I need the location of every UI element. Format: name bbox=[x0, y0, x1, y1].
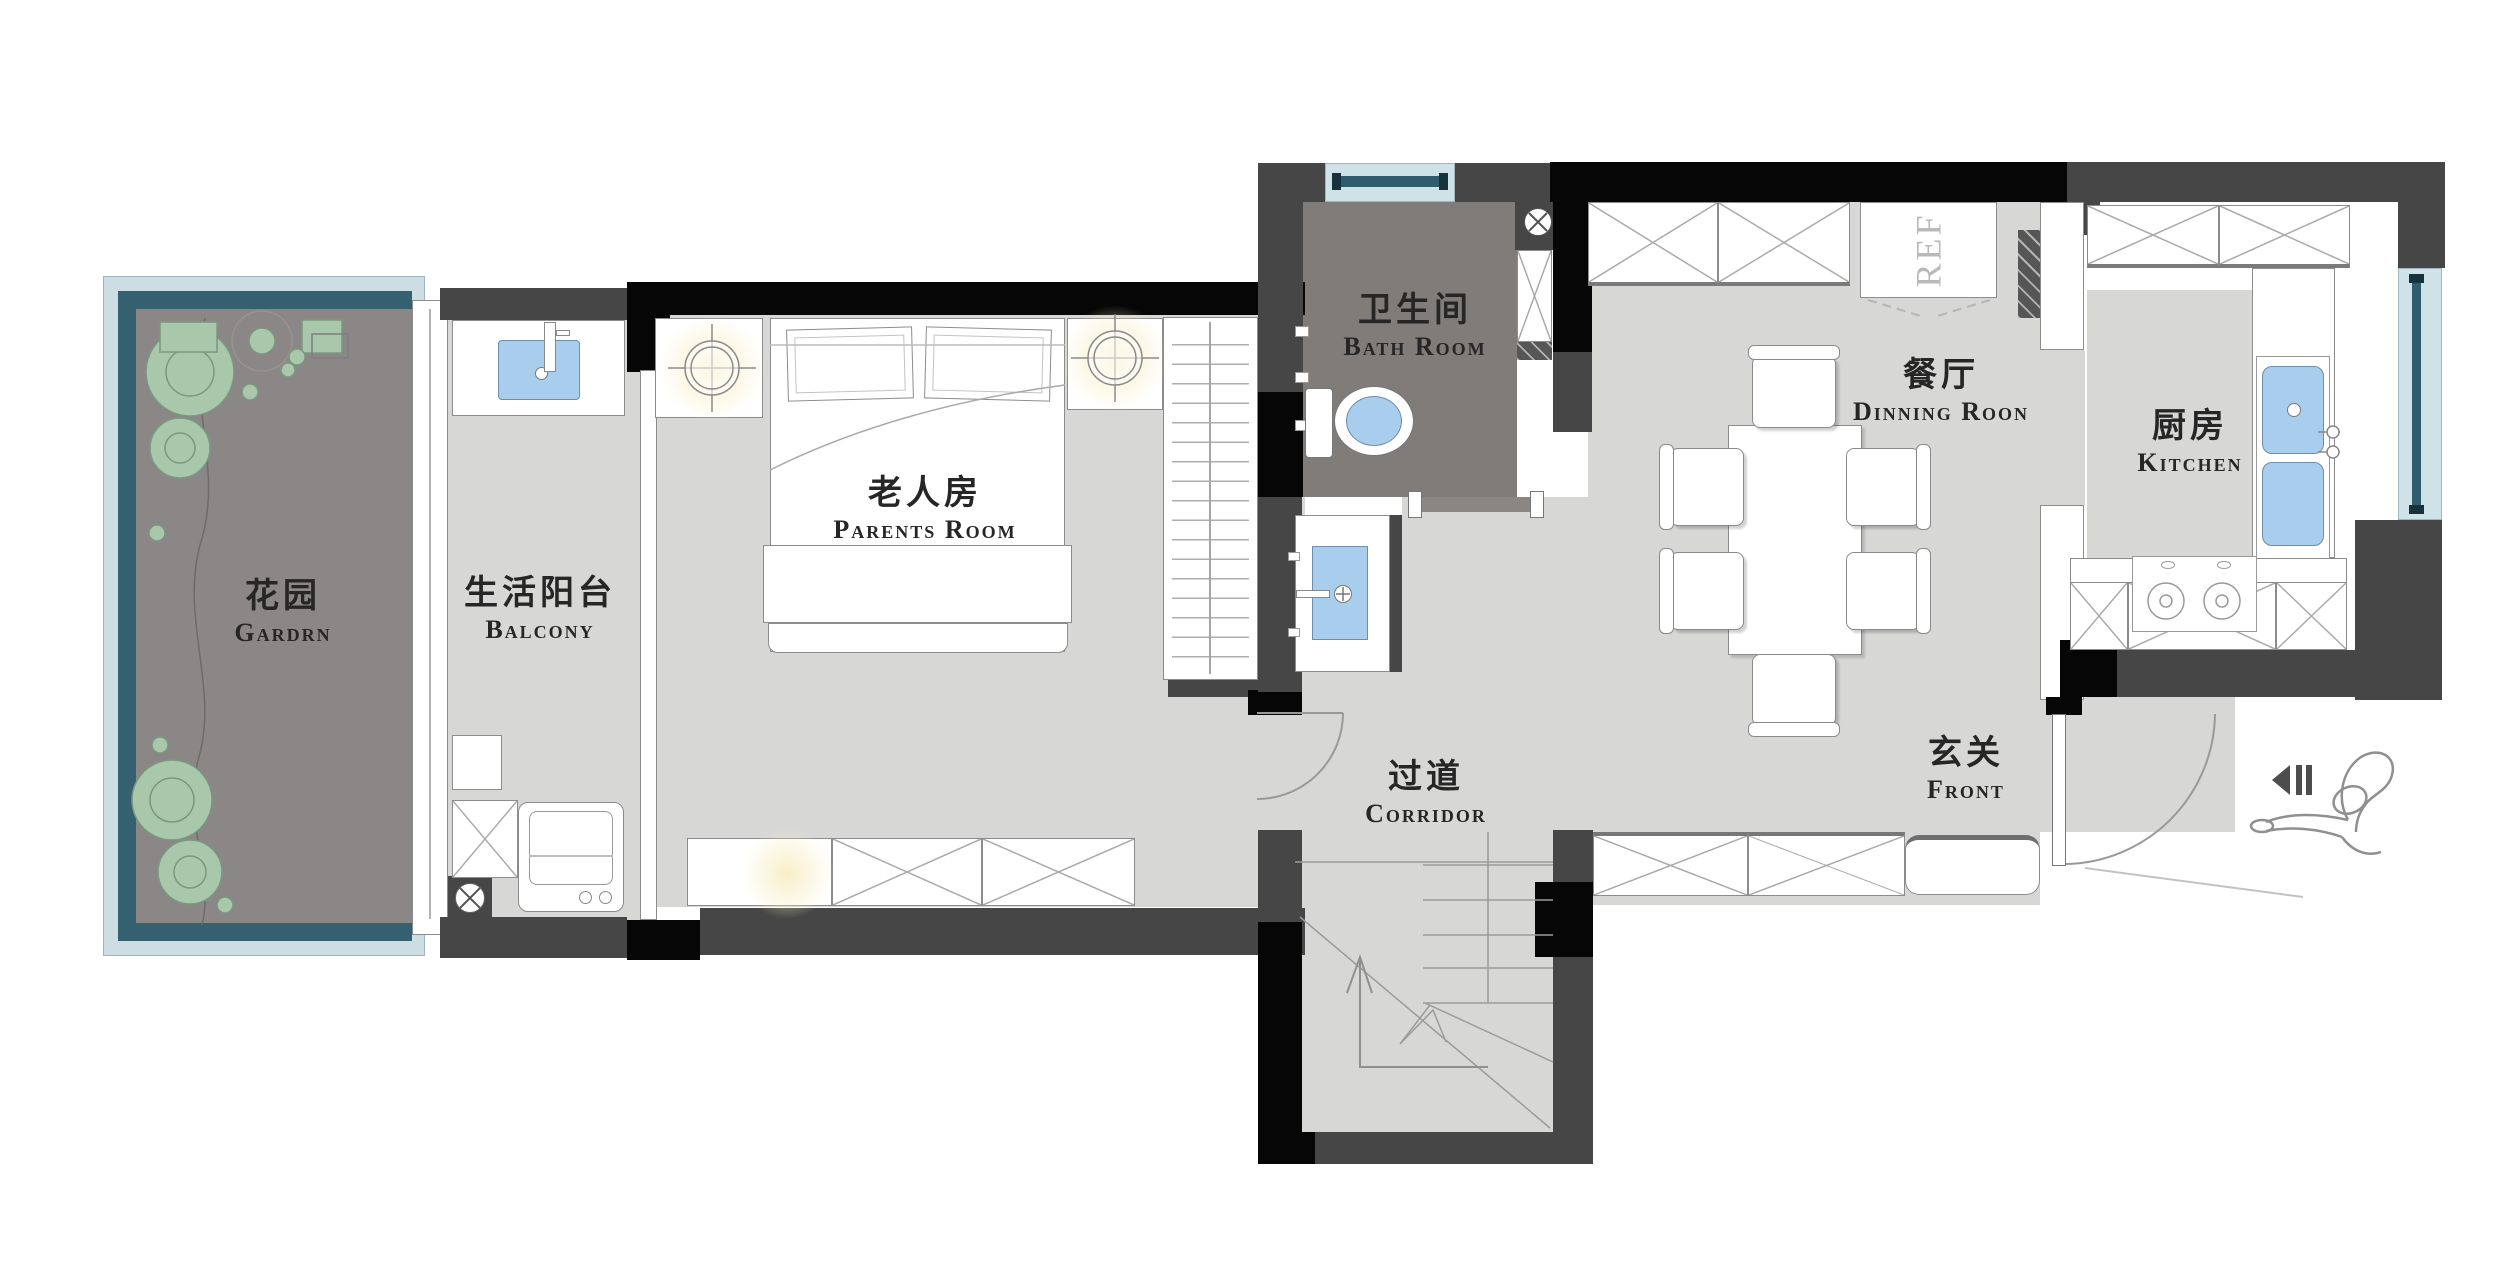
entry-threshold-line bbox=[2085, 868, 2303, 897]
room-label-zh: 厨房 bbox=[2137, 398, 2242, 447]
wall bbox=[1258, 830, 1302, 922]
wall bbox=[1258, 202, 1303, 392]
room-label-zh: 过道 bbox=[1365, 749, 1487, 798]
dining-cabinet-x bbox=[1588, 202, 1718, 286]
washer-line bbox=[529, 855, 613, 857]
chair-back bbox=[1748, 345, 1840, 360]
room-label-en: Dinning Roon bbox=[1853, 397, 2029, 427]
bathroom-cabinet-x bbox=[1517, 250, 1552, 342]
refrigerator: REF bbox=[1860, 202, 1997, 298]
wall-hatch bbox=[2018, 230, 2040, 318]
room-label-corridor: 过道 Corridor bbox=[1365, 749, 1487, 829]
door-post bbox=[1408, 491, 1422, 518]
wardrobe-rail bbox=[1209, 322, 1211, 674]
drain bbox=[2287, 403, 2301, 417]
door-post bbox=[2046, 697, 2082, 715]
pillow bbox=[924, 326, 1052, 401]
sliding-door-leaf bbox=[1422, 497, 1530, 512]
partition-wall bbox=[2040, 202, 2084, 350]
room-label-zh: 玄关 bbox=[1927, 725, 2005, 774]
stove-knob bbox=[2161, 561, 2175, 569]
wall bbox=[1258, 163, 1325, 202]
wall bbox=[1553, 202, 1592, 352]
wall bbox=[440, 288, 627, 320]
wall bbox=[1553, 352, 1592, 432]
pillow-seam bbox=[932, 335, 1043, 394]
faucet-spout-icon bbox=[556, 330, 570, 336]
towel-hook bbox=[1288, 628, 1300, 637]
doorway-floor bbox=[2040, 350, 2085, 505]
wall bbox=[2117, 650, 2442, 697]
towel-hook bbox=[1288, 552, 1300, 561]
wall bbox=[1168, 680, 1258, 697]
chair bbox=[1670, 552, 1744, 630]
room-label-en: Corridor bbox=[1365, 799, 1487, 829]
wall bbox=[2085, 162, 2445, 202]
room-label-en: Kitchen bbox=[2137, 448, 2242, 478]
kitchen-cabinet-x bbox=[2087, 205, 2219, 268]
window-frame bbox=[2412, 274, 2421, 514]
bed-footboard bbox=[768, 623, 1068, 653]
laundry-sink bbox=[498, 340, 580, 400]
room-label-entry: 玄关 Front bbox=[1927, 725, 2005, 805]
wall bbox=[1258, 392, 1303, 497]
washer-knob bbox=[579, 891, 592, 904]
wall bbox=[1258, 922, 1302, 1135]
wardrobe bbox=[1163, 317, 1258, 680]
wall bbox=[1315, 1132, 1593, 1164]
bedroom-cabinet-x bbox=[832, 838, 982, 906]
kitchen-base-cabinet-x bbox=[2070, 582, 2128, 650]
window-frame-cap bbox=[1332, 173, 1341, 190]
bed-blanket bbox=[763, 545, 1072, 623]
entrance-door-leaf bbox=[2052, 714, 2066, 866]
dining-table bbox=[1728, 425, 1862, 655]
room-label-balcony: 生活阳台 Balcony bbox=[464, 565, 616, 645]
kitchen-sink-basin bbox=[2262, 366, 2324, 454]
room-label-parents-room: 老人房 Parents Room bbox=[833, 465, 1016, 545]
faucet-icon bbox=[1296, 590, 1330, 598]
room-label-en: Parents Room bbox=[833, 515, 1016, 545]
chair bbox=[1752, 356, 1836, 428]
bedroom-cabinet bbox=[687, 838, 832, 906]
refrigerator-label: REF bbox=[1908, 212, 1950, 287]
washer-lid bbox=[529, 811, 613, 885]
window-frame-cap bbox=[2409, 274, 2424, 283]
door-post bbox=[1248, 690, 1302, 715]
floor-plan: REF bbox=[0, 0, 2500, 1273]
wall bbox=[700, 908, 1305, 955]
toilet-bowl bbox=[1346, 396, 1402, 446]
door-post bbox=[1530, 491, 1544, 518]
room-label-garden: 花园 Gardrn bbox=[234, 568, 331, 648]
bedroom-cabinet-x bbox=[982, 838, 1135, 906]
room-label-bathroom: 卫生间 Bath Room bbox=[1343, 282, 1486, 362]
shoe-cabinet-x bbox=[1593, 832, 1748, 896]
stove bbox=[2132, 556, 2257, 632]
entry-floor bbox=[2040, 697, 2235, 832]
balcony-cabinet bbox=[452, 800, 518, 878]
kitchen-base-cabinet-x bbox=[2276, 582, 2347, 650]
wall bbox=[1550, 162, 2042, 202]
balcony-stool bbox=[452, 735, 502, 790]
wall bbox=[1455, 163, 1550, 202]
faucet-icon bbox=[544, 322, 556, 372]
chair-back bbox=[1659, 548, 1674, 634]
chair bbox=[1846, 552, 1920, 630]
dining-cabinet-x bbox=[1718, 202, 1850, 286]
partition-track bbox=[429, 309, 431, 919]
wall bbox=[1535, 882, 1593, 957]
wall-switch bbox=[1295, 372, 1309, 383]
stove-knob bbox=[2217, 561, 2231, 569]
person-icon bbox=[2251, 753, 2393, 854]
room-label-en: Bath Room bbox=[1343, 332, 1486, 362]
shoe-cabinet-x bbox=[1748, 832, 1905, 896]
window-frame-cap bbox=[1439, 173, 1448, 190]
wall-hatch bbox=[1517, 342, 1552, 360]
chair bbox=[1670, 448, 1744, 526]
toilet-tank bbox=[1305, 388, 1333, 458]
wall bbox=[440, 917, 627, 958]
entry-bench bbox=[1905, 835, 2040, 895]
wall bbox=[2398, 202, 2445, 268]
chair-back bbox=[1916, 444, 1931, 530]
room-label-dining-room: 餐厅 Dinning Roon bbox=[1853, 347, 2029, 427]
pillow bbox=[786, 326, 914, 401]
entrance-arrow-icon bbox=[2272, 765, 2312, 795]
wall bbox=[627, 920, 700, 960]
chair-back bbox=[1659, 444, 1674, 530]
nightstand bbox=[655, 318, 763, 418]
wall-switch bbox=[1295, 326, 1309, 337]
room-label-en: Balcony bbox=[464, 615, 616, 645]
room-label-en: Front bbox=[1927, 775, 2005, 805]
pillow-seam bbox=[794, 335, 905, 394]
chair bbox=[1846, 448, 1920, 526]
balcony-bedroom-partition bbox=[640, 370, 657, 920]
room-label-zh: 老人房 bbox=[833, 465, 1016, 514]
wall bbox=[1553, 830, 1593, 882]
wall bbox=[1258, 1132, 1315, 1164]
kitchen-cabinet-x bbox=[2219, 205, 2350, 268]
window-frame bbox=[1332, 176, 1448, 187]
floor-drain-icon bbox=[455, 883, 485, 913]
garden-balcony-partition bbox=[412, 300, 448, 935]
stairs-floor bbox=[1295, 830, 1553, 1132]
chair-back bbox=[1916, 548, 1931, 634]
room-label-en: Gardrn bbox=[234, 618, 331, 648]
washing-machine bbox=[518, 802, 624, 912]
nightstand bbox=[1067, 318, 1163, 410]
wall bbox=[648, 282, 1305, 315]
room-label-zh: 生活阳台 bbox=[464, 565, 616, 614]
window-frame-cap bbox=[2409, 505, 2424, 514]
exhaust-fan-icon bbox=[1524, 208, 1552, 236]
chair-back bbox=[1748, 722, 1840, 737]
washer-knob bbox=[599, 891, 612, 904]
wall bbox=[1553, 957, 1593, 1132]
room-label-kitchen: 厨房 Kitchen bbox=[2137, 398, 2242, 478]
room-label-zh: 卫生间 bbox=[1343, 282, 1486, 331]
room-label-zh: 花园 bbox=[234, 568, 331, 617]
kitchen-sink-basin bbox=[2262, 462, 2324, 546]
chair bbox=[1752, 654, 1836, 726]
faucet-handle-icon bbox=[1334, 585, 1352, 603]
room-label-zh: 餐厅 bbox=[1853, 347, 2029, 396]
